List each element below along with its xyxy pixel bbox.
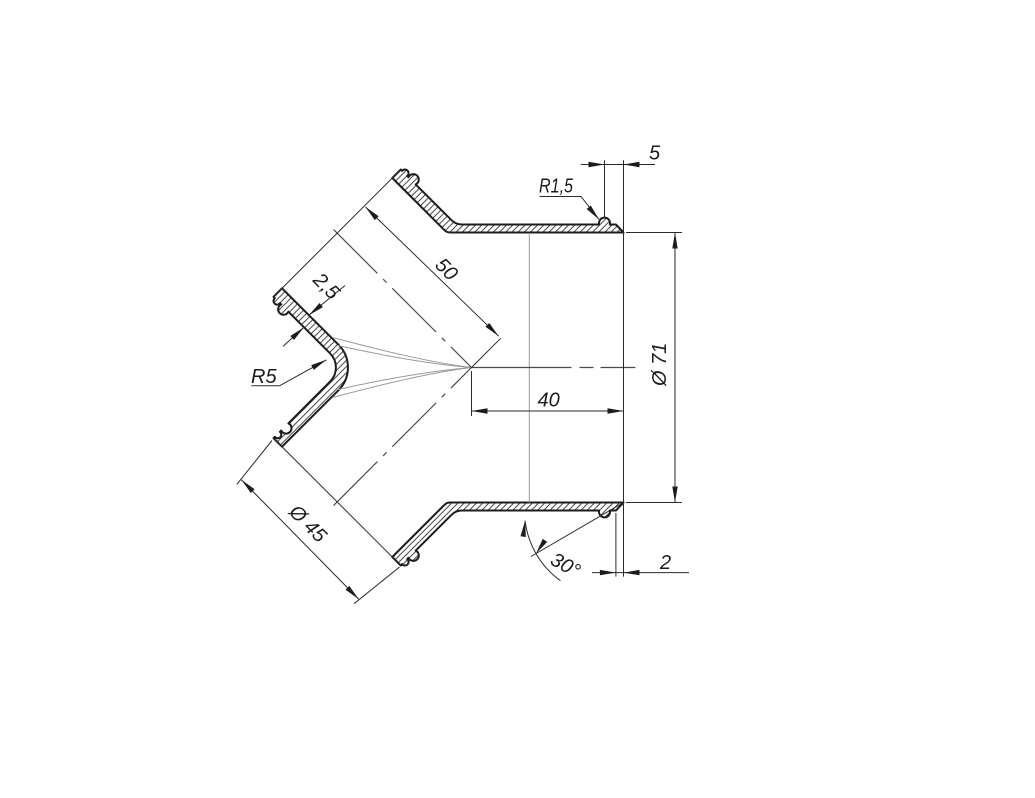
svg-text:R5: R5 xyxy=(251,366,277,388)
svg-text:5: 5 xyxy=(649,143,661,165)
svg-text:40: 40 xyxy=(538,390,560,412)
svg-text:2: 2 xyxy=(659,552,671,574)
svg-text:R1,5: R1,5 xyxy=(539,176,574,198)
svg-text:Ø 71: Ø 71 xyxy=(649,343,671,387)
